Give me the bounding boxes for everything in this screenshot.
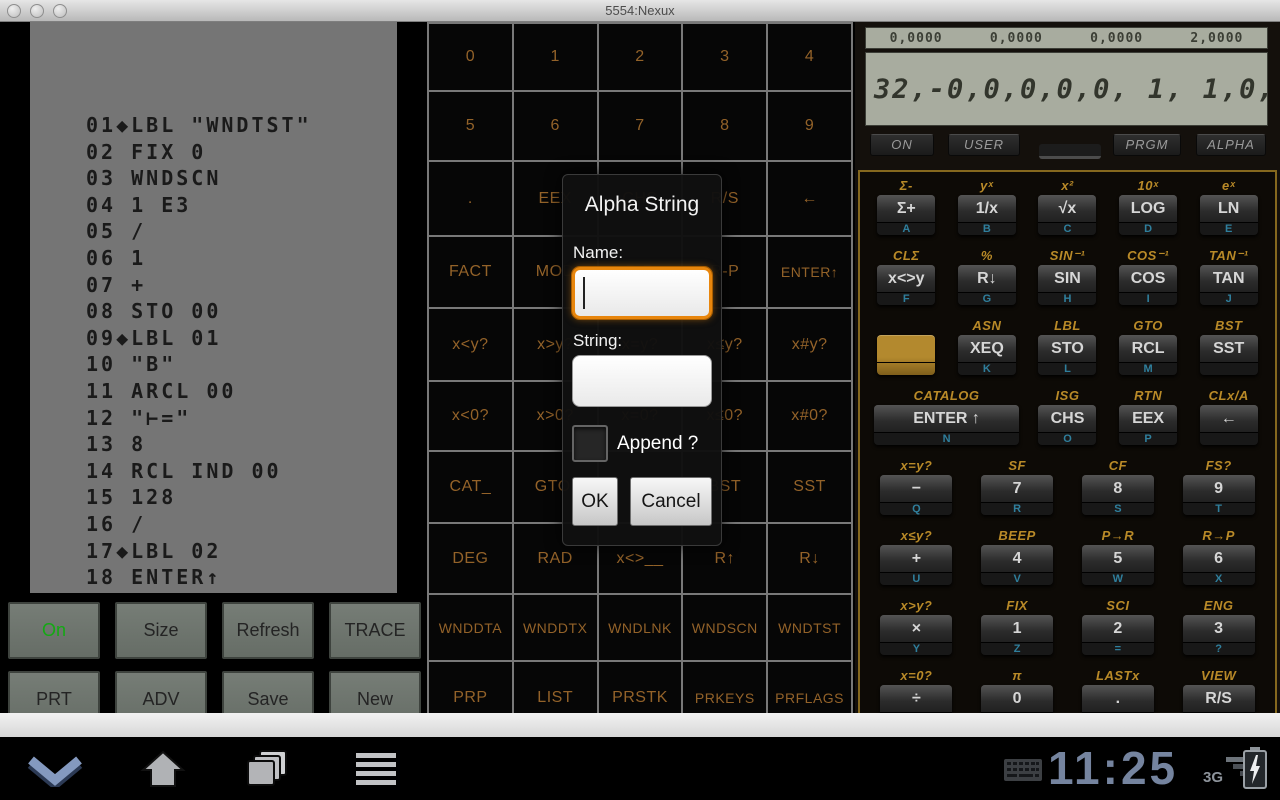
- calc-key-sto[interactable]: STOL: [1038, 335, 1096, 375]
- key-label: .: [1082, 685, 1154, 712]
- grid-function-key[interactable]: x<y?: [429, 309, 514, 382]
- grid-function-key[interactable]: ENTER↑: [768, 237, 853, 309]
- key-label: RCL: [1119, 335, 1177, 362]
- calc-key-r-s[interactable]: R/S: [1183, 685, 1255, 713]
- append-checkbox[interactable]: [572, 425, 608, 462]
- network-type-label: 3G: [1203, 769, 1223, 786]
- handle-button[interactable]: [1039, 144, 1101, 159]
- key-shift-label: ASN: [972, 318, 1001, 335]
- grid-function-key[interactable]: x<0?: [429, 382, 514, 452]
- name-input[interactable]: [572, 267, 712, 319]
- key-cell: yˣ1/xB: [947, 178, 1028, 235]
- key-alpha-letter: [1200, 362, 1258, 375]
- key-cell: ASNXEQK: [947, 318, 1028, 375]
- key-alpha-letter: E: [1200, 222, 1258, 235]
- key-shift-label: CLx/A: [1209, 388, 1249, 405]
- key-cell: BEEP4V: [967, 528, 1068, 585]
- function-grid-row: 56789: [429, 92, 853, 162]
- key-label: STO: [1038, 335, 1096, 362]
- lcd-status-value: 0,0000: [990, 31, 1043, 46]
- lcd-status-row: 0,00000,00000,00002,0000: [865, 27, 1268, 49]
- calc-key--[interactable]: +U: [880, 545, 952, 585]
- printer-output-panel: 01◆LBL "WNDTST"02 FIX 003 WNDSCN04 1 E30…: [30, 22, 397, 593]
- grid-function-key[interactable]: 9: [768, 92, 853, 162]
- key-alpha-letter: N: [874, 432, 1019, 445]
- printer-controls-row-2: PRTADVSaveNew: [8, 671, 421, 713]
- key-shift-label: FIX: [1006, 598, 1028, 615]
- key-cell: eˣLNE: [1188, 178, 1269, 235]
- grid-function-key[interactable]: ←: [768, 162, 853, 237]
- key-cell: 10ˣLOGD: [1108, 178, 1189, 235]
- lcd-display-text: 32,-0,0,0,0,0, 1, 1,0,: [874, 74, 1276, 105]
- key-cell: x≤y?+U: [866, 528, 967, 585]
- key-shift-label: CATALOG: [914, 388, 980, 405]
- key-label: 7: [981, 475, 1053, 502]
- key-alpha-letter: D: [1119, 222, 1177, 235]
- back-icon[interactable]: [24, 755, 86, 787]
- key-label: [877, 335, 935, 362]
- adv-button[interactable]: ADV: [115, 671, 207, 713]
- program-line: 18 ENTER↑: [86, 564, 397, 591]
- prt-button[interactable]: PRT: [8, 671, 100, 713]
- calc-key-2[interactable]: 2=: [1082, 615, 1154, 655]
- on-button[interactable]: ON: [870, 134, 934, 156]
- grid-function-key[interactable]: WNDLNK: [599, 595, 684, 662]
- alpha-button[interactable]: ALPHA: [1196, 134, 1266, 156]
- key-shift-label: GTO: [1133, 318, 1162, 335]
- key-cell: Σ-Σ+A: [866, 178, 947, 235]
- key-alpha-letter: ?: [1183, 642, 1255, 655]
- key-label: 1: [981, 615, 1053, 642]
- key-label: 0: [981, 685, 1053, 712]
- size-button[interactable]: Size: [115, 602, 207, 659]
- key-label: +: [880, 545, 952, 572]
- grid-function-key[interactable]: FACT: [429, 237, 514, 309]
- calc-key--[interactable]: ×Y: [880, 615, 952, 655]
- key-cell: VIEWR/S: [1168, 668, 1269, 713]
- key-label: TAN: [1200, 265, 1258, 292]
- key-label: CHS: [1038, 405, 1096, 432]
- grid-function-key[interactable]: PRSTK: [599, 662, 684, 713]
- key-label: 9: [1183, 475, 1255, 502]
- key-shift-label: COS⁻¹: [1127, 248, 1169, 265]
- function-grid-row: WNDDTAWNDDTXWNDLNKWNDSCNWNDTST: [429, 595, 853, 662]
- key-shift-label: CF: [1109, 458, 1127, 475]
- key-label: 1/x: [958, 195, 1016, 222]
- alpha-string-dialog: Alpha String Name: String: Append ? OK C…: [562, 174, 722, 546]
- key-label: LN: [1200, 195, 1258, 222]
- key-cell: TAN⁻¹TANJ: [1188, 248, 1269, 305]
- key-cell: CLx/A←: [1188, 388, 1269, 445]
- program-line: 08 STO 00: [86, 298, 397, 325]
- key-shift-label: x²: [1061, 178, 1074, 195]
- grid-function-key[interactable]: 2: [599, 24, 684, 92]
- calc-key-3[interactable]: 3?: [1183, 615, 1255, 655]
- grid-function-key[interactable]: 8: [683, 92, 768, 162]
- key-label: COS: [1119, 265, 1177, 292]
- lcd-display: 32,-0,0,0,0,0, 1, 1,0,: [865, 52, 1268, 126]
- key-cell: CF8S: [1068, 458, 1169, 515]
- program-line: 10 "B": [86, 351, 397, 378]
- program-line: 07 +: [86, 272, 397, 299]
- key-shift-label: CLΣ: [893, 248, 920, 265]
- key-alpha-letter: [877, 362, 935, 375]
- key-shift-label: [904, 318, 908, 335]
- key-shift-label: BST: [1215, 318, 1243, 335]
- program-line: 01◆LBL "WNDTST": [86, 112, 397, 139]
- save-button[interactable]: Save: [222, 671, 314, 713]
- calc-key-sst[interactable]: SST: [1200, 335, 1258, 375]
- key-alpha-letter: A: [877, 222, 935, 235]
- lcd-status-value: 2,0000: [1190, 31, 1243, 46]
- function-grid-row: 01234: [429, 24, 853, 92]
- status-clock: 11:25: [1048, 741, 1178, 795]
- key-label: 6: [1183, 545, 1255, 572]
- key-cell: GTORCLM: [1108, 318, 1189, 375]
- printer-controls-row-1: OnSizeRefreshTRACE: [8, 602, 421, 659]
- string-input[interactable]: [572, 355, 712, 407]
- grid-function-key[interactable]: WNDTST: [768, 595, 853, 662]
- ok-button[interactable]: OK: [572, 477, 618, 526]
- key-alpha-letter: M: [1119, 362, 1177, 375]
- key-cell: BSTSST: [1188, 318, 1269, 375]
- program-line: 03 WNDSCN: [86, 165, 397, 192]
- calc-key-rcl[interactable]: RCLM: [1119, 335, 1177, 375]
- key-label: R↓: [958, 265, 1016, 292]
- key-shift-label: VIEW: [1201, 668, 1236, 685]
- key-label: SST: [1200, 335, 1258, 362]
- key-label: x<>y: [877, 265, 935, 292]
- emulator-window: 5554:Nexux 01◆LBL "WNDTST"02 FIX 003 WND…: [0, 0, 1280, 800]
- grid-function-key[interactable]: R↓: [768, 524, 853, 595]
- grid-function-key[interactable]: WNDDTA: [429, 595, 514, 662]
- key-cell: LASTx.: [1068, 668, 1169, 713]
- menu-icon[interactable]: [354, 751, 398, 787]
- key-alpha-letter: =: [1082, 642, 1154, 655]
- calculator-keyboard: Σ-Σ+Ayˣ1/xBx²√xC10ˣLOGDeˣLNECLΣx<>yF%R↓G…: [858, 170, 1277, 713]
- key-alpha-letter: G: [958, 292, 1016, 305]
- grid-function-key[interactable]: LIST: [514, 662, 599, 713]
- key-cell: %R↓G: [947, 248, 1028, 305]
- key-alpha-letter: P: [1119, 432, 1177, 445]
- grid-function-key[interactable]: 1: [514, 24, 599, 92]
- key-shift-label: x>y?: [900, 598, 932, 615]
- calc-key--[interactable]: −Q: [880, 475, 952, 515]
- calc-key-enter-[interactable]: ENTER ↑N: [874, 405, 1019, 445]
- program-listing: 01◆LBL "WNDTST"02 FIX 003 WNDSCN04 1 E30…: [30, 22, 397, 593]
- key-label: ←: [1200, 405, 1258, 432]
- key-alpha-letter: F: [877, 292, 935, 305]
- new-button[interactable]: New: [329, 671, 421, 713]
- key-shift-label: FS?: [1206, 458, 1232, 475]
- program-line: 17◆LBL 02: [86, 538, 397, 565]
- key-cell: ENG3?: [1168, 598, 1269, 655]
- grid-function-key[interactable]: WNDDTX: [514, 595, 599, 662]
- program-line: 15 128: [86, 484, 397, 511]
- grid-function-key[interactable]: 0: [429, 24, 514, 92]
- calc-key--[interactable]: ←: [1200, 405, 1258, 445]
- android-screen: 01◆LBL "WNDTST"02 FIX 003 WNDSCN04 1 E30…: [0, 22, 1280, 713]
- key-label: 3: [1183, 615, 1255, 642]
- name-label: Name:: [573, 243, 712, 263]
- key-alpha-letter: H: [1038, 292, 1096, 305]
- calc-key-r-[interactable]: R↓G: [958, 265, 1016, 305]
- calc-key-log[interactable]: LOGD: [1119, 195, 1177, 235]
- append-label: Append ?: [617, 433, 698, 455]
- key-shift-label: x=0?: [900, 668, 932, 685]
- key-cell: x=0?÷,: [866, 668, 967, 713]
- key-label: ×: [880, 615, 952, 642]
- key-cell: FIX1Z: [967, 598, 1068, 655]
- key-shift-label: SIN⁻¹: [1050, 248, 1085, 265]
- recents-icon[interactable]: [244, 749, 292, 789]
- key-alpha-letter: O: [1038, 432, 1096, 445]
- grid-function-key[interactable]: PRKEYS: [683, 662, 768, 713]
- key-alpha-letter: R: [981, 502, 1053, 515]
- grid-function-key[interactable]: PRP: [429, 662, 514, 713]
- key-shift-label: LBL: [1054, 318, 1081, 335]
- lcd-status-value: 0,0000: [1090, 31, 1143, 46]
- key-alpha-letter: B: [958, 222, 1016, 235]
- key-shift-label: BEEP: [998, 528, 1035, 545]
- key-shift-label: ISG: [1056, 388, 1080, 405]
- program-line: 14 RCL IND 00: [86, 458, 397, 485]
- key-alpha-letter: Q: [880, 502, 952, 515]
- key-alpha-letter: U: [880, 572, 952, 585]
- key-shift-label: x≤y?: [901, 528, 933, 545]
- function-grid-row: PRPLISTPRSTKPRKEYSPRFLAGS: [429, 662, 853, 713]
- key-alpha-letter: Y: [880, 642, 952, 655]
- key-cell: x²√xC: [1027, 178, 1108, 235]
- program-line: 06 1: [86, 245, 397, 272]
- key-shift-label: R→P: [1202, 528, 1235, 545]
- key-shift-label: %: [981, 248, 993, 265]
- grid-function-key[interactable]: SST: [768, 452, 853, 524]
- key-shift-label: ENG: [1204, 598, 1234, 615]
- program-line: 11 ARCL 00: [86, 378, 397, 405]
- key-label: Σ+: [877, 195, 935, 222]
- key-alpha-letter: K: [958, 362, 1016, 375]
- calculator-panel: 0,00000,00000,00002,0000 32,-0,0,0,0,0, …: [855, 22, 1280, 713]
- grid-function-key[interactable]: 5: [429, 92, 514, 162]
- key-shift-label: RTN: [1134, 388, 1162, 405]
- key-cell: ISGCHSO: [1027, 388, 1108, 445]
- key-alpha-letter: L: [1038, 362, 1096, 375]
- window-title: 5554:Nexux: [0, 3, 1280, 18]
- key-cell: [866, 318, 947, 375]
- key-shift-label: 10ˣ: [1138, 178, 1159, 195]
- key-shift-label: yˣ: [980, 178, 993, 195]
- program-line: 05 /: [86, 218, 397, 245]
- gold-shift-key[interactable]: [877, 335, 935, 375]
- program-line: 04 1 E3: [86, 192, 397, 219]
- key-alpha-letter: [1200, 432, 1258, 445]
- program-line: 16 /: [86, 511, 397, 538]
- key-cell: FS?9T: [1168, 458, 1269, 515]
- key-alpha-letter: C: [1038, 222, 1096, 235]
- calc-key-6[interactable]: 6X: [1183, 545, 1255, 585]
- grid-function-key[interactable]: WNDSCN: [683, 595, 768, 662]
- key-cell: CLΣx<>yF: [866, 248, 947, 305]
- grid-function-key[interactable]: 6: [514, 92, 599, 162]
- key-label: XEQ: [958, 335, 1016, 362]
- key-alpha-letter: J: [1200, 292, 1258, 305]
- key-cell: x>y?×Y: [866, 598, 967, 655]
- window-titlebar: 5554:Nexux: [0, 0, 1280, 22]
- key-label: LOG: [1119, 195, 1177, 222]
- keyboard-status-icon: [1004, 759, 1042, 781]
- calc-key-sin[interactable]: SINH: [1038, 265, 1096, 305]
- key-shift-label: x=y?: [900, 458, 932, 475]
- key-label: ENTER ↑: [874, 405, 1019, 432]
- program-line: 19 FRC: [86, 591, 397, 593]
- program-line: 12 "⊢=": [86, 405, 397, 432]
- key-alpha-letter: X: [1183, 572, 1255, 585]
- key-alpha-letter: Z: [981, 642, 1053, 655]
- calc-key-9[interactable]: 9T: [1183, 475, 1255, 515]
- key-cell: CATALOGENTER ↑N: [866, 388, 1027, 445]
- android-navbar: 11:25 3G: [0, 737, 1280, 800]
- key-label: SIN: [1038, 265, 1096, 292]
- key-cell: R→P6X: [1168, 528, 1269, 585]
- program-line: 13 8: [86, 431, 397, 458]
- grid-function-key[interactable]: .: [429, 162, 514, 237]
- refresh-button[interactable]: Refresh: [222, 602, 314, 659]
- program-line: 02 FIX 0: [86, 139, 397, 166]
- key-shift-label: SF: [1008, 458, 1026, 475]
- key-label: 4: [981, 545, 1053, 572]
- calc-key--x[interactable]: √xC: [1038, 195, 1096, 235]
- grid-function-key[interactable]: x#y?: [768, 309, 853, 382]
- calc-key-1[interactable]: 1Z: [981, 615, 1053, 655]
- key-label: 2: [1082, 615, 1154, 642]
- prgm-button[interactable]: PRGM: [1113, 134, 1181, 156]
- key-alpha-letter: W: [1082, 572, 1154, 585]
- key-cell: SIN⁻¹SINH: [1027, 248, 1108, 305]
- calc-key--[interactable]: ÷,: [880, 685, 952, 713]
- key-alpha-letter: V: [981, 572, 1053, 585]
- grid-function-key[interactable]: 4: [768, 24, 853, 92]
- trace-button[interactable]: TRACE: [329, 602, 421, 659]
- key-alpha-letter: S: [1082, 502, 1154, 515]
- grid-function-key[interactable]: x#0?: [768, 382, 853, 452]
- key-label: ÷: [880, 685, 952, 712]
- key-label: −: [880, 475, 952, 502]
- grid-function-key[interactable]: 7: [599, 92, 684, 162]
- text-cursor: [583, 277, 585, 309]
- grid-function-key[interactable]: DEG: [429, 524, 514, 595]
- calc-key-8[interactable]: 8S: [1082, 475, 1154, 515]
- battery-charging-icon: [1243, 747, 1267, 789]
- calc-key--[interactable]: Σ+A: [877, 195, 935, 235]
- grid-function-key[interactable]: PRFLAGS: [768, 662, 853, 713]
- key-shift-label: eˣ: [1222, 178, 1235, 195]
- key-label: EEX: [1119, 405, 1177, 432]
- key-label: 8: [1082, 475, 1154, 502]
- calc-key--[interactable]: .: [1082, 685, 1154, 713]
- key-alpha-letter: I: [1119, 292, 1177, 305]
- calc-key-5[interactable]: 5W: [1082, 545, 1154, 585]
- key-cell: x=y?−Q: [866, 458, 967, 515]
- calc-key-x-y[interactable]: x<>yF: [877, 265, 935, 305]
- key-cell: π0SPACE: [967, 668, 1068, 713]
- dialog-title: Alpha String: [572, 193, 712, 217]
- string-label: String:: [573, 331, 712, 351]
- key-shift-label: SCI: [1106, 598, 1129, 615]
- key-label: √x: [1038, 195, 1096, 222]
- calc-key-xeq[interactable]: XEQK: [958, 335, 1016, 375]
- calc-key-ln[interactable]: LNE: [1200, 195, 1258, 235]
- key-alpha-letter: T: [1183, 502, 1255, 515]
- key-shift-label: π: [1012, 668, 1022, 685]
- key-cell: LBLSTOL: [1027, 318, 1108, 375]
- key-shift-label: Σ-: [900, 178, 913, 195]
- calc-key-chs[interactable]: CHSO: [1038, 405, 1096, 445]
- on-button[interactable]: On: [8, 602, 100, 659]
- calc-key-tan[interactable]: TANJ: [1200, 265, 1258, 305]
- key-shift-label: LASTx: [1096, 668, 1140, 685]
- calc-key-4[interactable]: 4V: [981, 545, 1053, 585]
- key-cell: P→R5W: [1068, 528, 1169, 585]
- key-shift-label: TAN⁻¹: [1209, 248, 1248, 265]
- calc-key-eex[interactable]: EEXP: [1119, 405, 1177, 445]
- calc-key-0[interactable]: 0SPACE: [981, 685, 1053, 713]
- key-cell: SCI2=: [1068, 598, 1169, 655]
- key-cell: SF7R: [967, 458, 1068, 515]
- lcd-status-value: 0,0000: [890, 31, 943, 46]
- grid-function-key[interactable]: 3: [683, 24, 768, 92]
- key-cell: RTNEEXP: [1108, 388, 1189, 445]
- home-icon[interactable]: [140, 749, 186, 789]
- program-line: 09◆LBL 01: [86, 325, 397, 352]
- screen-bottom-strip: [0, 713, 1280, 737]
- calc-key-7[interactable]: 7R: [981, 475, 1053, 515]
- key-label: R/S: [1183, 685, 1255, 712]
- key-cell: COS⁻¹COSI: [1108, 248, 1189, 305]
- calc-key-cos[interactable]: COSI: [1119, 265, 1177, 305]
- calc-key-1-x[interactable]: 1/xB: [958, 195, 1016, 235]
- key-label: 5: [1082, 545, 1154, 572]
- cancel-button[interactable]: Cancel: [630, 477, 712, 526]
- key-shift-label: P→R: [1102, 528, 1135, 545]
- user-button[interactable]: USER: [948, 134, 1020, 156]
- grid-function-key[interactable]: CAT_: [429, 452, 514, 524]
